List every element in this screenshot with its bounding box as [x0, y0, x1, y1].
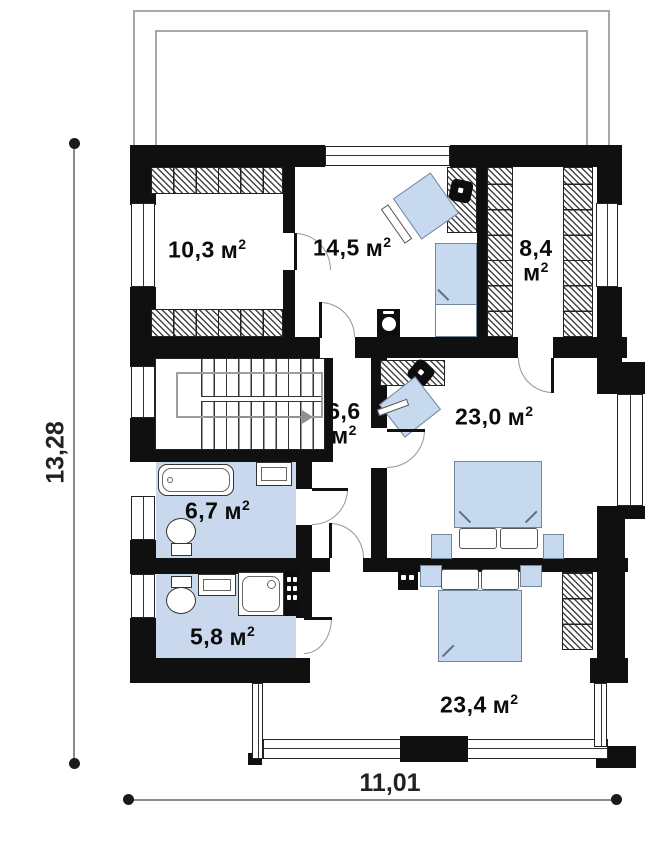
stair-direction-arrow [204, 416, 304, 418]
room-label-23-4: 23,4м2 [440, 691, 519, 719]
window [252, 683, 263, 759]
window [325, 146, 450, 166]
door-leaf [304, 617, 332, 620]
wall [597, 167, 622, 205]
washbasin [198, 574, 236, 596]
window [596, 203, 618, 287]
ventilation-shaft [284, 572, 299, 616]
washbasin-inner [203, 579, 231, 591]
wall [400, 736, 468, 762]
wall [130, 540, 156, 559]
washbasin-inner [261, 467, 287, 481]
shower-cabin [238, 572, 284, 616]
stair-void-outline [176, 372, 323, 418]
door-arc [320, 302, 355, 337]
wall [283, 165, 295, 233]
dimension-label-height: 13,28 [42, 403, 71, 503]
toilet [166, 587, 196, 614]
nightstand [520, 565, 542, 587]
pillow [500, 528, 538, 549]
office-chair [448, 178, 474, 204]
wall [597, 506, 645, 519]
wardrobe-shelves [563, 167, 593, 337]
stair-arrow-head-icon [302, 410, 313, 424]
ventilation-shaft [398, 569, 418, 590]
pillow [441, 569, 479, 590]
wall [130, 418, 156, 448]
room-label-23-0: 23,0м2 [455, 403, 534, 431]
wall [130, 337, 320, 358]
door-arc [518, 358, 553, 393]
wall [371, 468, 387, 558]
door-leaf [319, 302, 322, 338]
bathtub [158, 464, 234, 496]
dimension-endpoint [69, 138, 80, 149]
door-leaf [312, 488, 348, 491]
single-bed [435, 243, 477, 305]
wall [553, 337, 627, 358]
wardrobe-shelves [562, 572, 593, 650]
wardrobe-shelves [151, 309, 283, 337]
boiler [377, 309, 400, 337]
pillow [481, 569, 519, 590]
door-leaf [551, 358, 554, 393]
dimension-line-width [128, 799, 616, 801]
room-label-6-7: 6,7м2 [185, 497, 250, 525]
wall [283, 270, 295, 337]
window [131, 203, 155, 287]
dimension-endpoint [69, 758, 80, 769]
dimension-label-width: 11,01 [340, 769, 440, 798]
wall [355, 337, 518, 358]
wall [130, 618, 156, 659]
dimension-endpoint [123, 794, 134, 805]
door-arc [312, 489, 348, 525]
nightstand [420, 565, 442, 587]
window [131, 496, 155, 540]
toilet-tank [171, 543, 192, 556]
wall [296, 462, 312, 489]
wall [597, 362, 645, 394]
staircase [155, 358, 325, 450]
nightstand [431, 534, 452, 559]
wardrobe-shelves [151, 167, 283, 194]
room-label-8-4: 8,4 м2 [512, 237, 560, 286]
dimension-line-height [73, 143, 75, 763]
door-leaf [329, 523, 332, 558]
nightstand [543, 534, 564, 559]
single-bed-foot [435, 304, 477, 337]
room-label-10-3: 10,3м2 [168, 236, 247, 264]
window [131, 574, 155, 618]
washbasin [256, 462, 292, 486]
window [617, 394, 643, 506]
room-label-5-8: 5,8м2 [190, 623, 255, 651]
bathtub-drain-icon [167, 477, 173, 483]
door-leaf [387, 429, 425, 432]
terrace-outline-inner [155, 30, 588, 145]
room-label-6-6: 6,6 м2 [320, 400, 368, 449]
shower-drain-icon [267, 580, 276, 589]
dimension-endpoint [611, 794, 622, 805]
wall [130, 658, 310, 683]
window [131, 366, 155, 418]
floor-plan: 10,3м2 14,5м2 8,4 м2 6,6 м2 23,0м2 6,7м2… [0, 0, 655, 851]
door-arc [304, 618, 332, 654]
wall [590, 658, 628, 683]
window [594, 683, 607, 747]
double-bed [438, 590, 522, 662]
wall [312, 558, 330, 572]
wall [450, 145, 622, 167]
door-arc [330, 523, 364, 558]
wall [130, 145, 325, 167]
pillow [459, 528, 497, 549]
wall [363, 558, 385, 572]
door-leaf [294, 233, 297, 270]
door-arc [387, 430, 425, 468]
wall [597, 572, 625, 658]
room-label-14-5: 14,5м2 [313, 234, 392, 262]
wardrobe-shelves [487, 167, 513, 337]
wall [477, 165, 487, 337]
